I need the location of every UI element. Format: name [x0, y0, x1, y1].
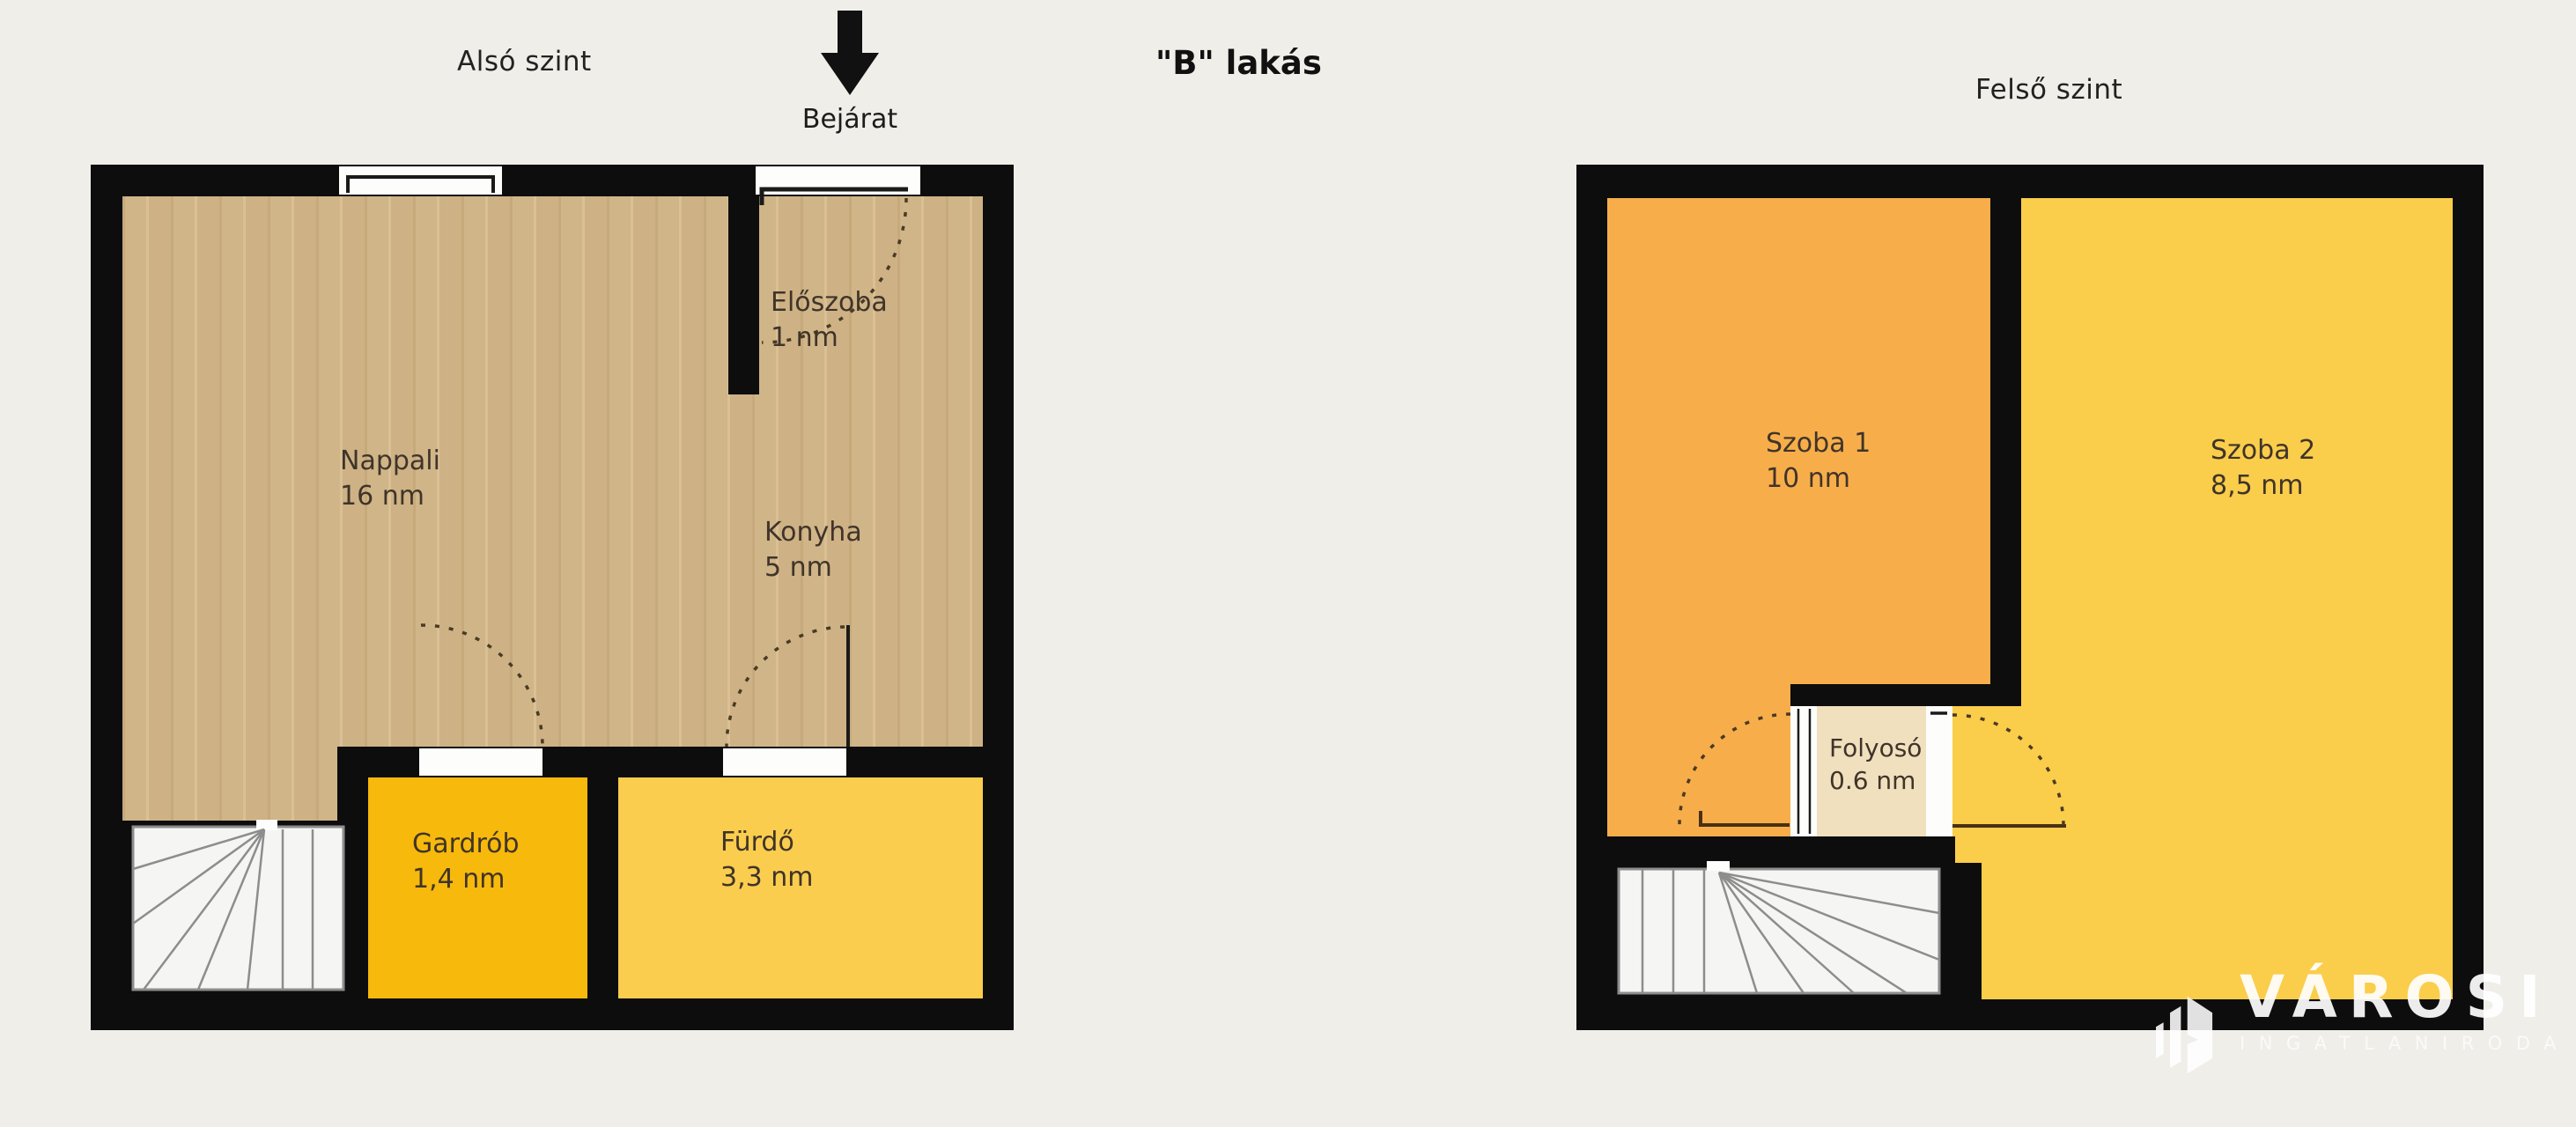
wall-folyoso-bottom: [1607, 836, 1955, 863]
room-nappali-konyha-eloszoba-floor: [122, 196, 983, 747]
floor-plan-lower: Nappali 16 nm Előszoba 1 nm Konyha 5 nm …: [91, 165, 1014, 1030]
brand-name: VÁROSI: [2240, 967, 2570, 1028]
room-label-szoba1: Szoba 1 10 nm: [1766, 426, 1871, 496]
gardrob-door-opening: [419, 748, 543, 776]
brand-tagline: INGATLANIRODA: [2240, 1033, 2570, 1054]
upper-floor-title: Felső szint: [1975, 74, 2122, 106]
room-label-nappali: Nappali 16 nm: [340, 444, 440, 513]
wall-eloszoba-divider: [728, 165, 759, 394]
arrow-head: [821, 53, 879, 95]
room-label-konyha: Konyha 5 nm: [764, 515, 862, 585]
wall-right: [2453, 165, 2484, 1030]
wall-top: [1576, 165, 2484, 198]
furdo-door-opening: [723, 748, 846, 776]
wall-stairs-szoba2: [1942, 863, 1982, 999]
wall-left: [91, 165, 122, 1030]
floor-plan-upper: Szoba 1 10 nm Szoba 2 8,5 nm Folyosó 0.6…: [1576, 165, 2484, 1030]
room-label-furdo: Fürdő 3,3 nm: [720, 825, 813, 895]
room-szoba2: [2021, 198, 2453, 999]
stairwell-block-upper: [1607, 863, 1982, 999]
wall-szoba-divider: [1990, 165, 2021, 706]
window-opening: [339, 166, 502, 195]
wall-gardrob-furdo: [587, 777, 618, 998]
floor-plan-page: Alsó szint Bejárat "B" lakás Felső szint: [0, 0, 2576, 1127]
brand-logo: VÁROSI INGATLANIRODA: [2156, 967, 2570, 1112]
room-label-gardrob: Gardrób 1,4 nm: [412, 827, 520, 896]
wall-bottom: [91, 998, 1014, 1030]
wall-right: [983, 165, 1014, 1030]
lower-floor-title: Alsó szint: [457, 46, 592, 77]
room-label-eloszoba: Előszoba 1 nm: [771, 285, 888, 355]
brand-text: VÁROSI INGATLANIRODA: [2240, 967, 2570, 1054]
wall-left: [1576, 165, 1607, 1030]
page-title: "B" lakás: [1155, 44, 1322, 82]
floor-strip-above-stairs: [122, 747, 337, 822]
folyoso-door-opening-right: [1926, 706, 1952, 839]
arrow-shaft: [838, 11, 862, 56]
entrance-label: Bejárat: [753, 104, 947, 135]
room-label-folyoso: Folyosó 0.6 nm: [1829, 733, 1922, 798]
room-label-szoba2: Szoba 2 8,5 nm: [2211, 433, 2315, 503]
wall-folyoso-top: [1790, 684, 2021, 706]
wall-stairs-gardrob: [337, 747, 368, 1030]
room-szoba1-lower: [1607, 198, 1790, 836]
entrance-door-opening: [756, 166, 920, 195]
folyoso-door-opening-left: [1790, 706, 1817, 839]
building-logo-icon: [2156, 967, 2217, 1099]
